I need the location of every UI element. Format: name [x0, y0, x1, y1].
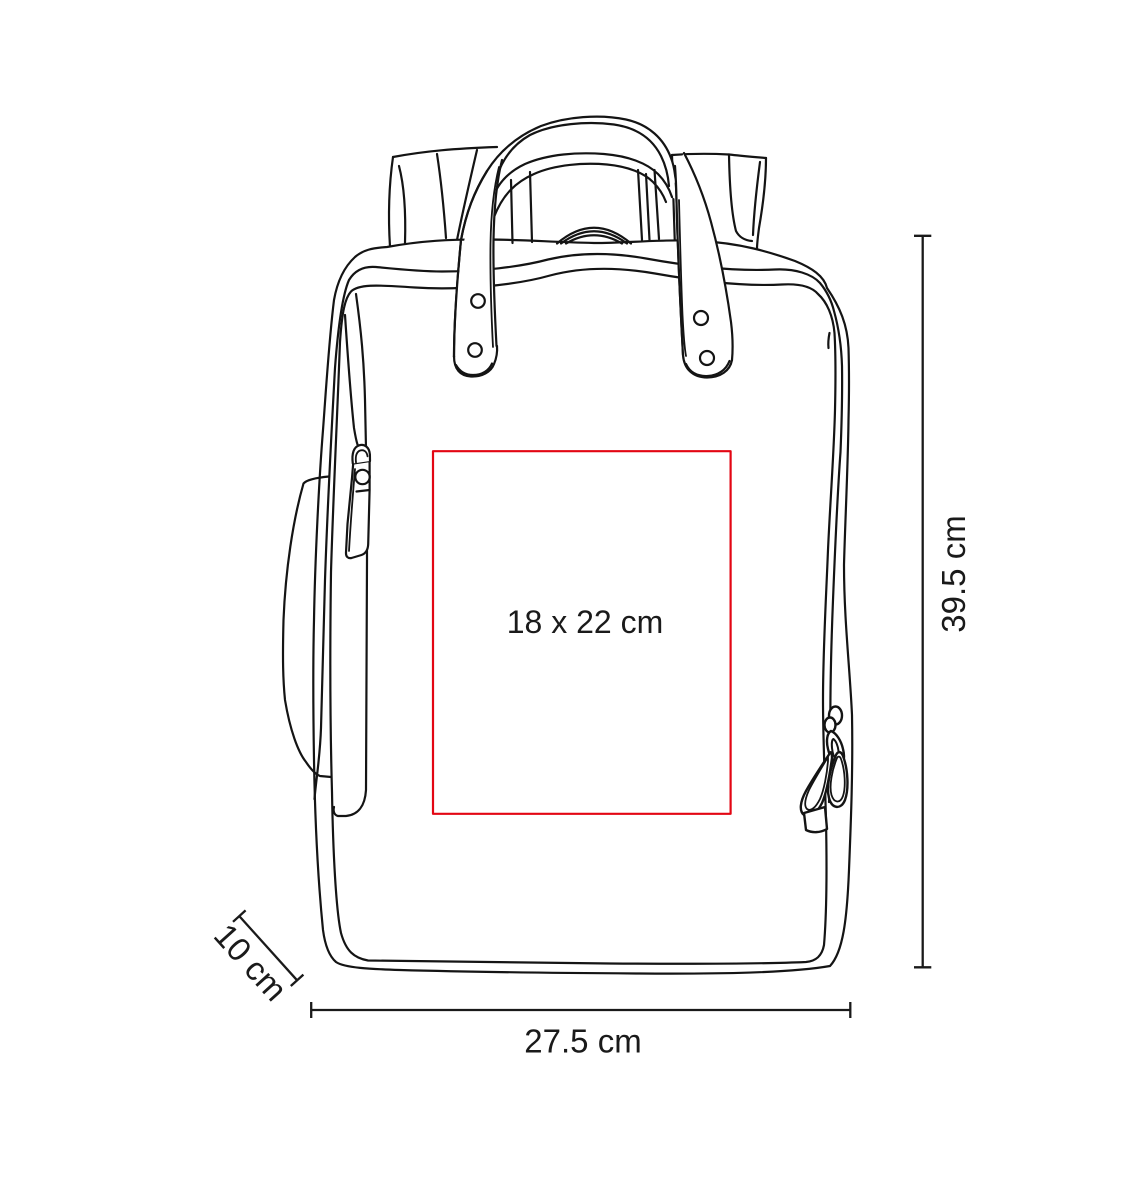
- svg-text:27.5 cm: 27.5 cm: [524, 1023, 641, 1060]
- svg-text:39.5 cm: 39.5 cm: [935, 515, 972, 632]
- svg-text:18 x 22 cm: 18 x 22 cm: [507, 604, 664, 640]
